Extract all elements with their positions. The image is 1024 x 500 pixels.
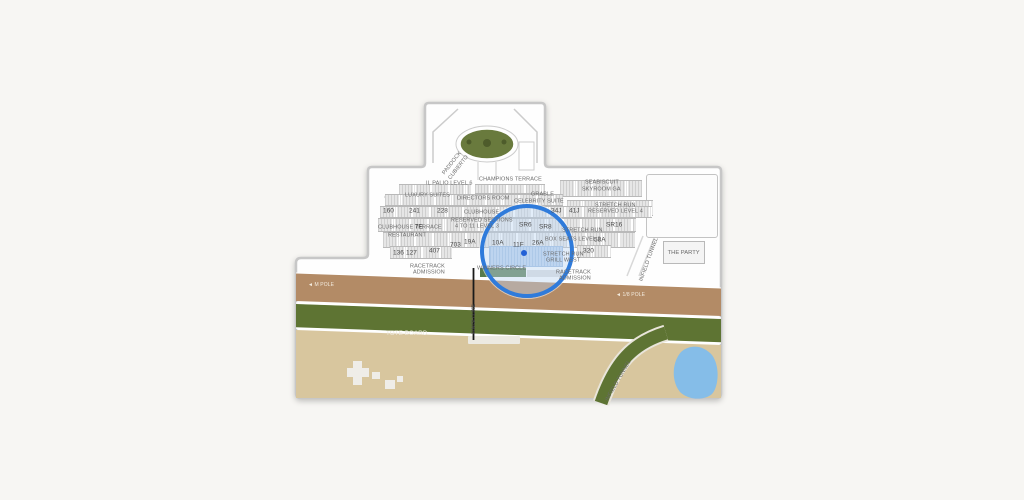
winners-circle-label: WINNERS CIRCLE [477, 265, 526, 271]
finish-line-label: FINISH LINE [471, 304, 477, 334]
stretch-run-boxes-label: STRETCH RUN [562, 227, 603, 233]
paddock-tree [502, 140, 507, 145]
selected-seat-marker[interactable] [521, 250, 527, 256]
section-407[interactable]: 407 [429, 247, 440, 254]
stretch-run-grill-label: GRILL WEST [546, 257, 580, 263]
eighth-pole-marker: ◄ 1/8 POLE [616, 292, 645, 298]
section-sr8[interactable]: SR8 [539, 223, 552, 230]
the-party-label: THE PARTY [668, 249, 700, 255]
grable-celebrity-suite-label: CELEBRITY SUITE [514, 198, 564, 204]
racetrack-admission-label: ADMISSION [413, 269, 445, 275]
infield-lake [674, 347, 718, 399]
paddock-tower [519, 142, 534, 170]
tote-board-label: TOTE BOARD [386, 330, 427, 337]
restaurant-label: RESTAURANT [388, 232, 426, 238]
il-palio-label: IL PALIO LEVEL 6 [426, 180, 473, 186]
infield-building [385, 380, 395, 389]
paddock-tree [483, 139, 491, 147]
seabiscuit-skyroom-label: SEABISCUIT [585, 179, 619, 185]
section-41j[interactable]: 41J [569, 207, 580, 214]
section-703[interactable]: 703 [450, 241, 461, 248]
clubhouse-terrace-label: CLUBHOUSE TERRACE [378, 224, 442, 230]
reserved-sections-label: 4 TO 11 LEVEL 3 [455, 223, 499, 229]
seabiscuit-skyroom-label: SKYROOM GA [582, 186, 621, 192]
section-19a[interactable]: 19A [464, 238, 476, 245]
infield-building [372, 372, 380, 379]
infield-building [353, 361, 362, 385]
section-241[interactable]: 241 [409, 207, 420, 214]
mile-pole-marker: ◄ M POLE [308, 282, 334, 288]
clubhouse-label: CLUBHOUSE [464, 209, 499, 215]
building-panel [646, 174, 718, 238]
stretch-run-boxes-label: BOX SEATS LEVEL 2 [545, 236, 601, 242]
section-320[interactable]: 320 [583, 247, 594, 254]
section-26a[interactable]: 26A [532, 239, 544, 246]
section-58a[interactable]: 58A [594, 236, 606, 243]
section-the-party[interactable]: THE PARTY [663, 241, 705, 264]
racetrack-admission-label: ADMISSION [559, 275, 591, 281]
luxury-suites-label: LUXURY SUITES [405, 192, 450, 198]
section-10a[interactable]: 10A [492, 239, 504, 246]
section-160[interactable]: 160 [383, 207, 394, 214]
venue-seat-map: THE PARTY PADDOCK CUBIERTO IL PALIO LEVE… [0, 0, 1024, 500]
section-136[interactable]: 136 [393, 249, 404, 256]
stretch-run-reserved-label: RESERVED LEVEL 4 [588, 208, 643, 214]
section-sr6[interactable]: SR6 [519, 221, 532, 228]
section-11f[interactable]: 11F [513, 241, 524, 248]
section-34j[interactable]: 34J [551, 207, 562, 214]
infield-building [397, 376, 403, 382]
directors-room-label: DIRECTORS ROOM [457, 195, 509, 201]
champions-terrace-label: CHAMPIONS TERRACE [479, 176, 542, 182]
tote-board-shape [468, 336, 520, 344]
section-7e[interactable]: 7E [415, 223, 423, 230]
grable-celebrity-suite-label: GRABLE [531, 191, 554, 197]
paddock-tree [467, 140, 472, 145]
section-228[interactable]: 228 [437, 207, 448, 214]
section-sr16[interactable]: SR16 [606, 221, 622, 228]
section-127[interactable]: 127 [406, 249, 417, 256]
